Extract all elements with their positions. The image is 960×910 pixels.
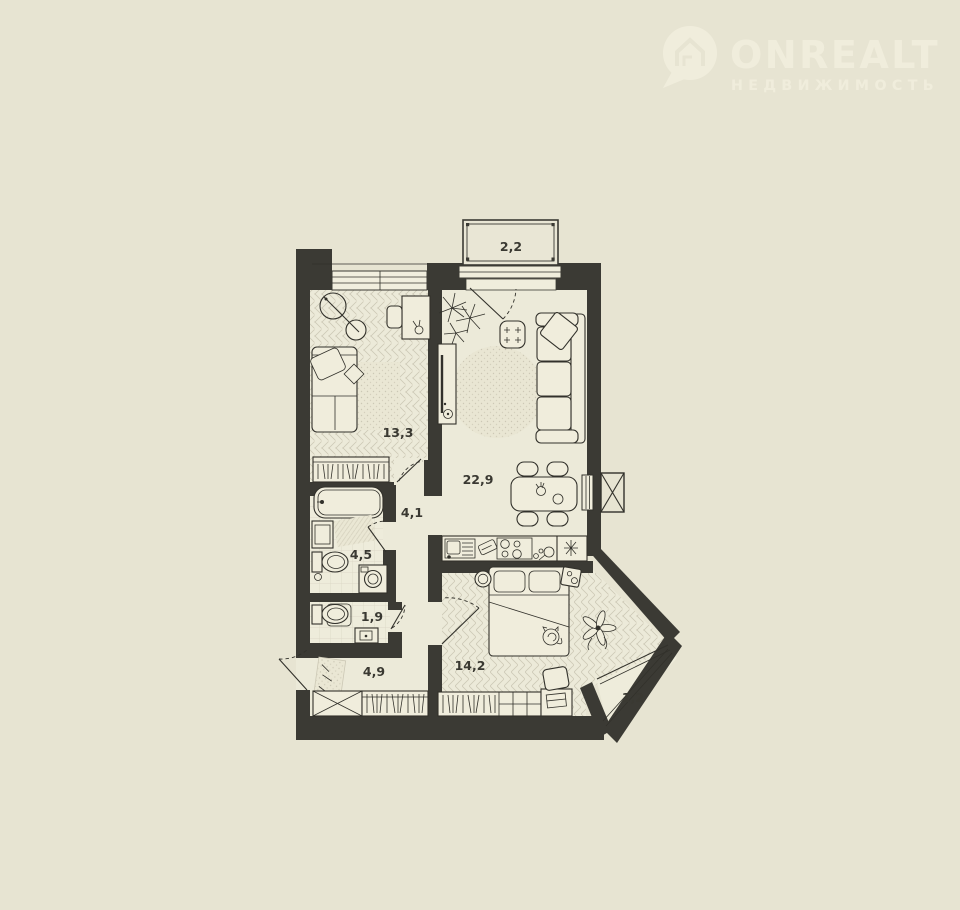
fridge-snowflake-icon bbox=[564, 540, 578, 556]
floor-plan-page: ONREALT НЕДВИЖИМОСТЬ bbox=[0, 0, 960, 910]
chair-icon bbox=[387, 306, 402, 328]
shoe-cabinet-icon bbox=[313, 691, 362, 716]
room-label-hall-entry: 4,9 bbox=[363, 664, 385, 679]
coffee-table-icon bbox=[500, 321, 525, 348]
bedroom-desk-icon bbox=[541, 666, 572, 716]
brand-tagline: НЕДВИЖИМОСТЬ bbox=[731, 78, 939, 94]
double-bed-icon bbox=[489, 567, 569, 656]
room-label-hall-inner: 4,1 bbox=[401, 505, 423, 520]
washing-machine-icon bbox=[359, 565, 387, 593]
brand-name: ONREALT bbox=[730, 33, 940, 77]
bathtub-icon bbox=[314, 487, 383, 518]
toilet-icon bbox=[312, 552, 348, 572]
sofa-icon bbox=[536, 311, 585, 443]
hall-wardrobe-icon bbox=[362, 691, 428, 716]
floor-plan-canvas: ONREALT НЕДВИЖИМОСТЬ bbox=[0, 0, 960, 910]
room-label-bedroom-main: 13,3 bbox=[383, 425, 414, 440]
bed-icon bbox=[309, 347, 364, 432]
bedside-table-icon bbox=[561, 567, 582, 588]
room-label-wc: 1,9 bbox=[361, 609, 383, 624]
room-label-bedroom-second: 14,2 bbox=[455, 658, 486, 673]
desk-chair-icon bbox=[542, 666, 569, 691]
wardrobe-icon bbox=[313, 457, 389, 482]
ac-unit-icon bbox=[582, 473, 624, 512]
stool-icon bbox=[475, 571, 491, 587]
bathroom-sink-icon bbox=[312, 521, 333, 548]
bedroom-wardrobe-icon bbox=[438, 692, 541, 716]
room-label-bathroom: 4,5 bbox=[350, 547, 372, 562]
kitchen-counter-icon bbox=[442, 536, 587, 561]
tv-stand-icon bbox=[438, 344, 456, 424]
room-label-living: 22,9 bbox=[463, 472, 494, 487]
laptop-icon bbox=[546, 693, 566, 708]
room-label-balcony-top: 2,2 bbox=[500, 239, 522, 254]
wc-toilet-icon bbox=[312, 605, 348, 625]
room-label-balcony-bottom: 1,2 bbox=[622, 690, 644, 705]
wc-sink-icon bbox=[355, 628, 378, 643]
